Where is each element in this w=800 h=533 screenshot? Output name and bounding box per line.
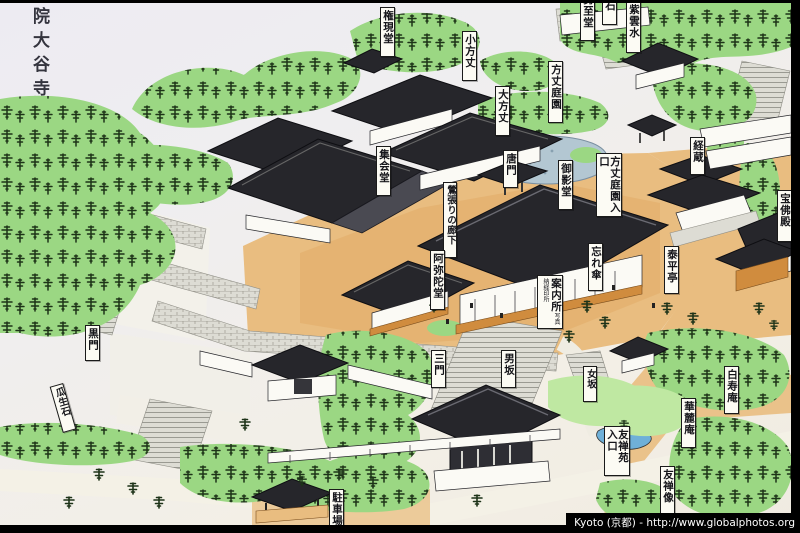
map-photo: 院大谷寺 権現堂 勢至堂 石 紫雲水 小方丈 大方丈 方丈庭園 経蔵 唐門 御影… — [0, 3, 791, 525]
map-label-kohojo: 小方丈 — [462, 31, 477, 81]
map-label-taiheitei: 泰平亭 — [664, 246, 679, 294]
map-label-gongendo: 権現堂 — [380, 7, 395, 57]
map-label-hojo-teien-iriguchi: 方丈庭園入口 — [596, 153, 622, 217]
watermark: Kyoto (京都) - http://www.globalphotos.org — [566, 513, 800, 533]
map-label-sanmon: 三門 — [431, 350, 446, 388]
map-label-shiunsui: 紫雲水 — [626, 3, 641, 53]
map-label-karokuan: 華麓庵 — [681, 398, 696, 448]
map-label-annaijo: 案内所写真納経印所 — [537, 275, 563, 329]
map-label-kuromon: 黒門 — [85, 325, 100, 361]
map-label-amidado: 阿弥陀堂 — [430, 250, 445, 310]
map-label-ohojo: 大方丈 — [495, 86, 510, 136]
map-label-chushajo: 駐車場 — [329, 489, 344, 525]
map-label-shukaido: 集会堂 — [376, 146, 391, 196]
map-label-karamon: 唐門 — [503, 150, 518, 188]
map-label-seishido: 勢至堂 — [580, 3, 595, 41]
photo-of-temple-map: { "title": { "text": "院大谷寺" }, "labels":… — [0, 0, 800, 533]
map-label-yuzenen-iriguchi: 友禅苑入口 — [604, 426, 630, 476]
map-label-hojo-teien: 方丈庭園 — [548, 61, 563, 123]
annaijo-main: 案内所 — [550, 278, 562, 313]
map-label-hakujuan: 白寿庵 — [724, 366, 739, 414]
map-label-otokozaka: 男坂 — [501, 350, 516, 388]
map-label-hobutsuden: 宝佛殿 — [777, 190, 791, 242]
map-label-kyozo: 経蔵 — [690, 137, 705, 175]
watermark-text: Kyoto (京都) - http://www.globalphotos.org — [574, 515, 795, 530]
map-label-uguisubari-no-roka: 鶯張りの廊下 — [443, 182, 457, 258]
map-label-ishi: 石 — [602, 3, 617, 25]
map-label-mieido: 御影堂 — [558, 160, 573, 210]
map-label-yuzenzo: 友禅像 — [660, 466, 675, 514]
map-label-wasuregasa: 忘れ傘 — [588, 243, 603, 291]
map-label-onnazaka: 女坂 — [583, 366, 597, 402]
map-title-calligraphy: 院大谷寺 — [30, 7, 47, 107]
